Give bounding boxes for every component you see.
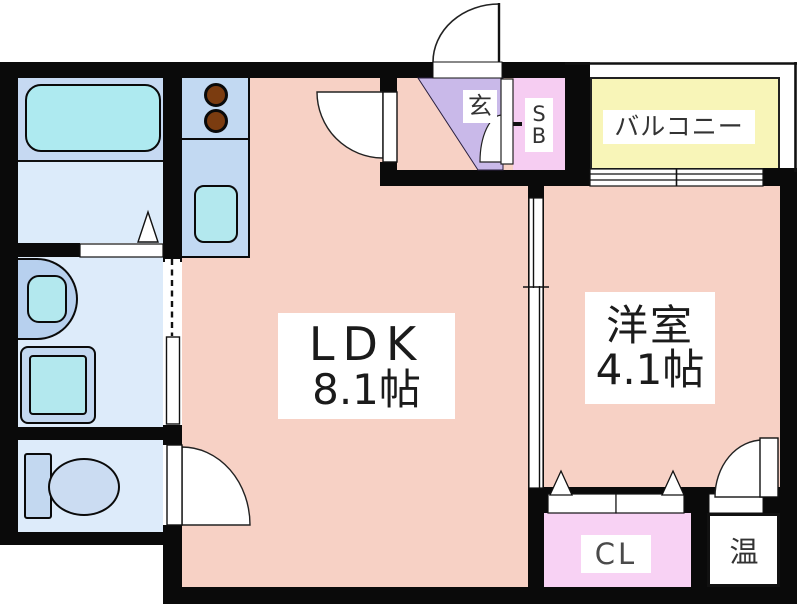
label-water-heater: 温 bbox=[722, 532, 766, 572]
toilet-door bbox=[167, 445, 250, 525]
label-closet: CL bbox=[581, 535, 651, 573]
fold-door-arrow-icon bbox=[550, 471, 572, 495]
water-heater-door bbox=[709, 438, 778, 513]
label-shoe-box: S B bbox=[525, 98, 553, 152]
western-room-name: 洋室 bbox=[606, 304, 694, 348]
western-sliding-door bbox=[523, 198, 549, 488]
label-balcony: バルコニー bbox=[603, 110, 755, 144]
washroom-sliding-door bbox=[165, 259, 180, 425]
closet-name: CL bbox=[595, 539, 637, 569]
hall-door bbox=[317, 92, 397, 162]
balcony-window bbox=[590, 169, 763, 186]
label-ldk: LDK 8.1帖 bbox=[278, 313, 455, 419]
ldk-name: LDK bbox=[309, 320, 424, 368]
fold-door-arrow-icon bbox=[662, 471, 684, 495]
fold-door-arrow-icon bbox=[138, 212, 158, 242]
closet-doors bbox=[548, 471, 684, 513]
water-heater-name: 温 bbox=[729, 537, 758, 567]
label-entrance: 玄 bbox=[463, 90, 497, 123]
floor-plan: LDK 8.1帖 洋室 4.1帖 バルコニー 玄 S B CL 温 bbox=[0, 0, 800, 604]
entrance-name: 玄 bbox=[468, 94, 492, 119]
bath-door bbox=[80, 212, 163, 257]
door-handle-icon bbox=[513, 122, 522, 126]
ldk-size: 8.1帖 bbox=[312, 368, 421, 412]
western-room-size: 4.1帖 bbox=[596, 348, 705, 392]
balcony-name: バルコニー bbox=[614, 114, 744, 140]
shoe-box-line2: B bbox=[532, 125, 546, 147]
label-western-room: 洋室 4.1帖 bbox=[585, 292, 715, 404]
shoe-box-line1: S bbox=[532, 103, 545, 125]
